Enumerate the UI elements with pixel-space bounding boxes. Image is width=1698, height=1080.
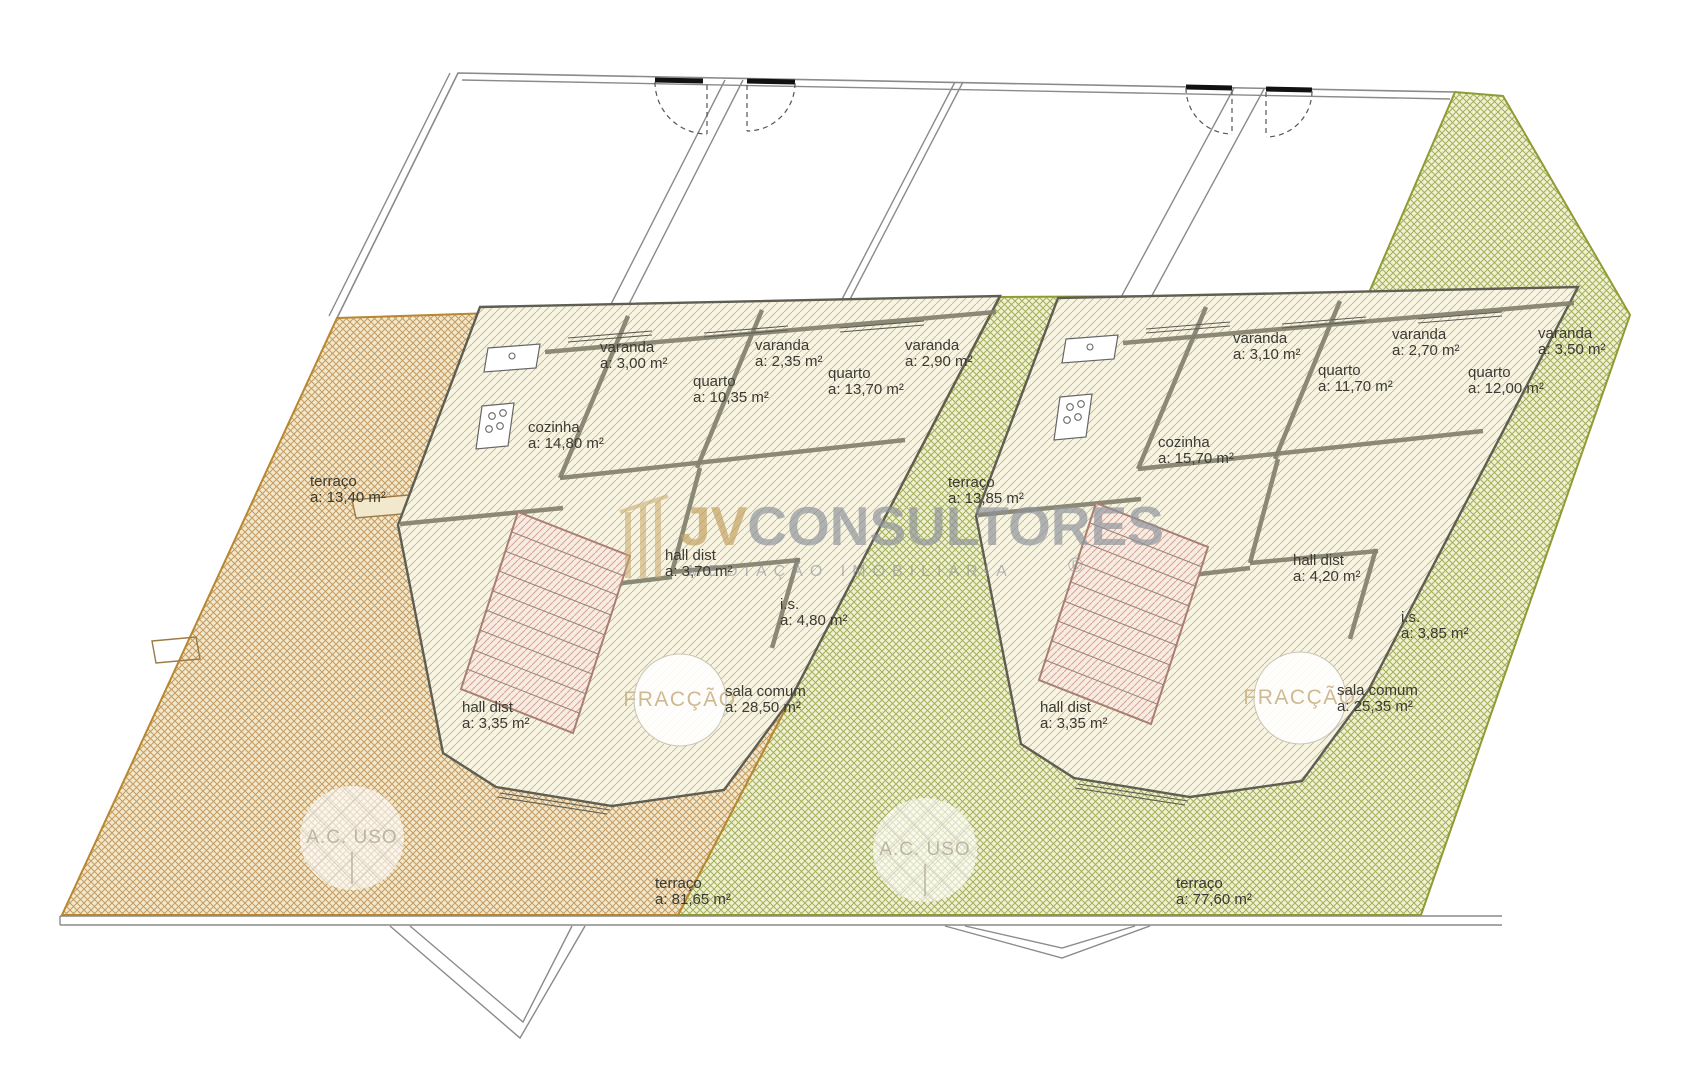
boundary-notch-left [390, 926, 585, 1038]
brand-tagline: MEDIAÇÃO IMOBILIÁRIA [688, 560, 1014, 580]
brand-wordmark: JVCONSULTORES [680, 495, 1164, 557]
door-threshold [1266, 89, 1312, 90]
stove-icon [476, 403, 514, 449]
door-threshold [747, 81, 795, 82]
floor-plan-page: FRACÇÃO FRACÇÃO A.C. USO A.C. USO JVCONS… [0, 0, 1698, 1080]
common-use-stamp-label: A.C. USO [879, 839, 970, 860]
door-threshold [655, 80, 703, 81]
floor-plan-canvas: FRACÇÃO FRACÇÃO A.C. USO A.C. USO JVCONS… [0, 0, 1698, 1080]
door-threshold [1186, 87, 1232, 88]
brand-logo-icon [620, 496, 668, 578]
sink-icon [1062, 335, 1118, 363]
sink-icon [484, 344, 540, 372]
fraction-stamp-label: FRACÇÃO [623, 687, 736, 711]
stove-icon [1054, 394, 1092, 440]
common-use-stamp-label: A.C. USO [306, 827, 397, 848]
room-label-right-sala-comum: sala comuma: 25,35 m² [1337, 682, 1418, 715]
room-label-left-sala-comum: sala comuma: 28,50 m² [725, 683, 806, 716]
registered-trademark-icon: ® [1068, 555, 1083, 577]
upper-rooms-band [329, 73, 1455, 318]
site-boundary-bottom [60, 916, 1502, 1038]
